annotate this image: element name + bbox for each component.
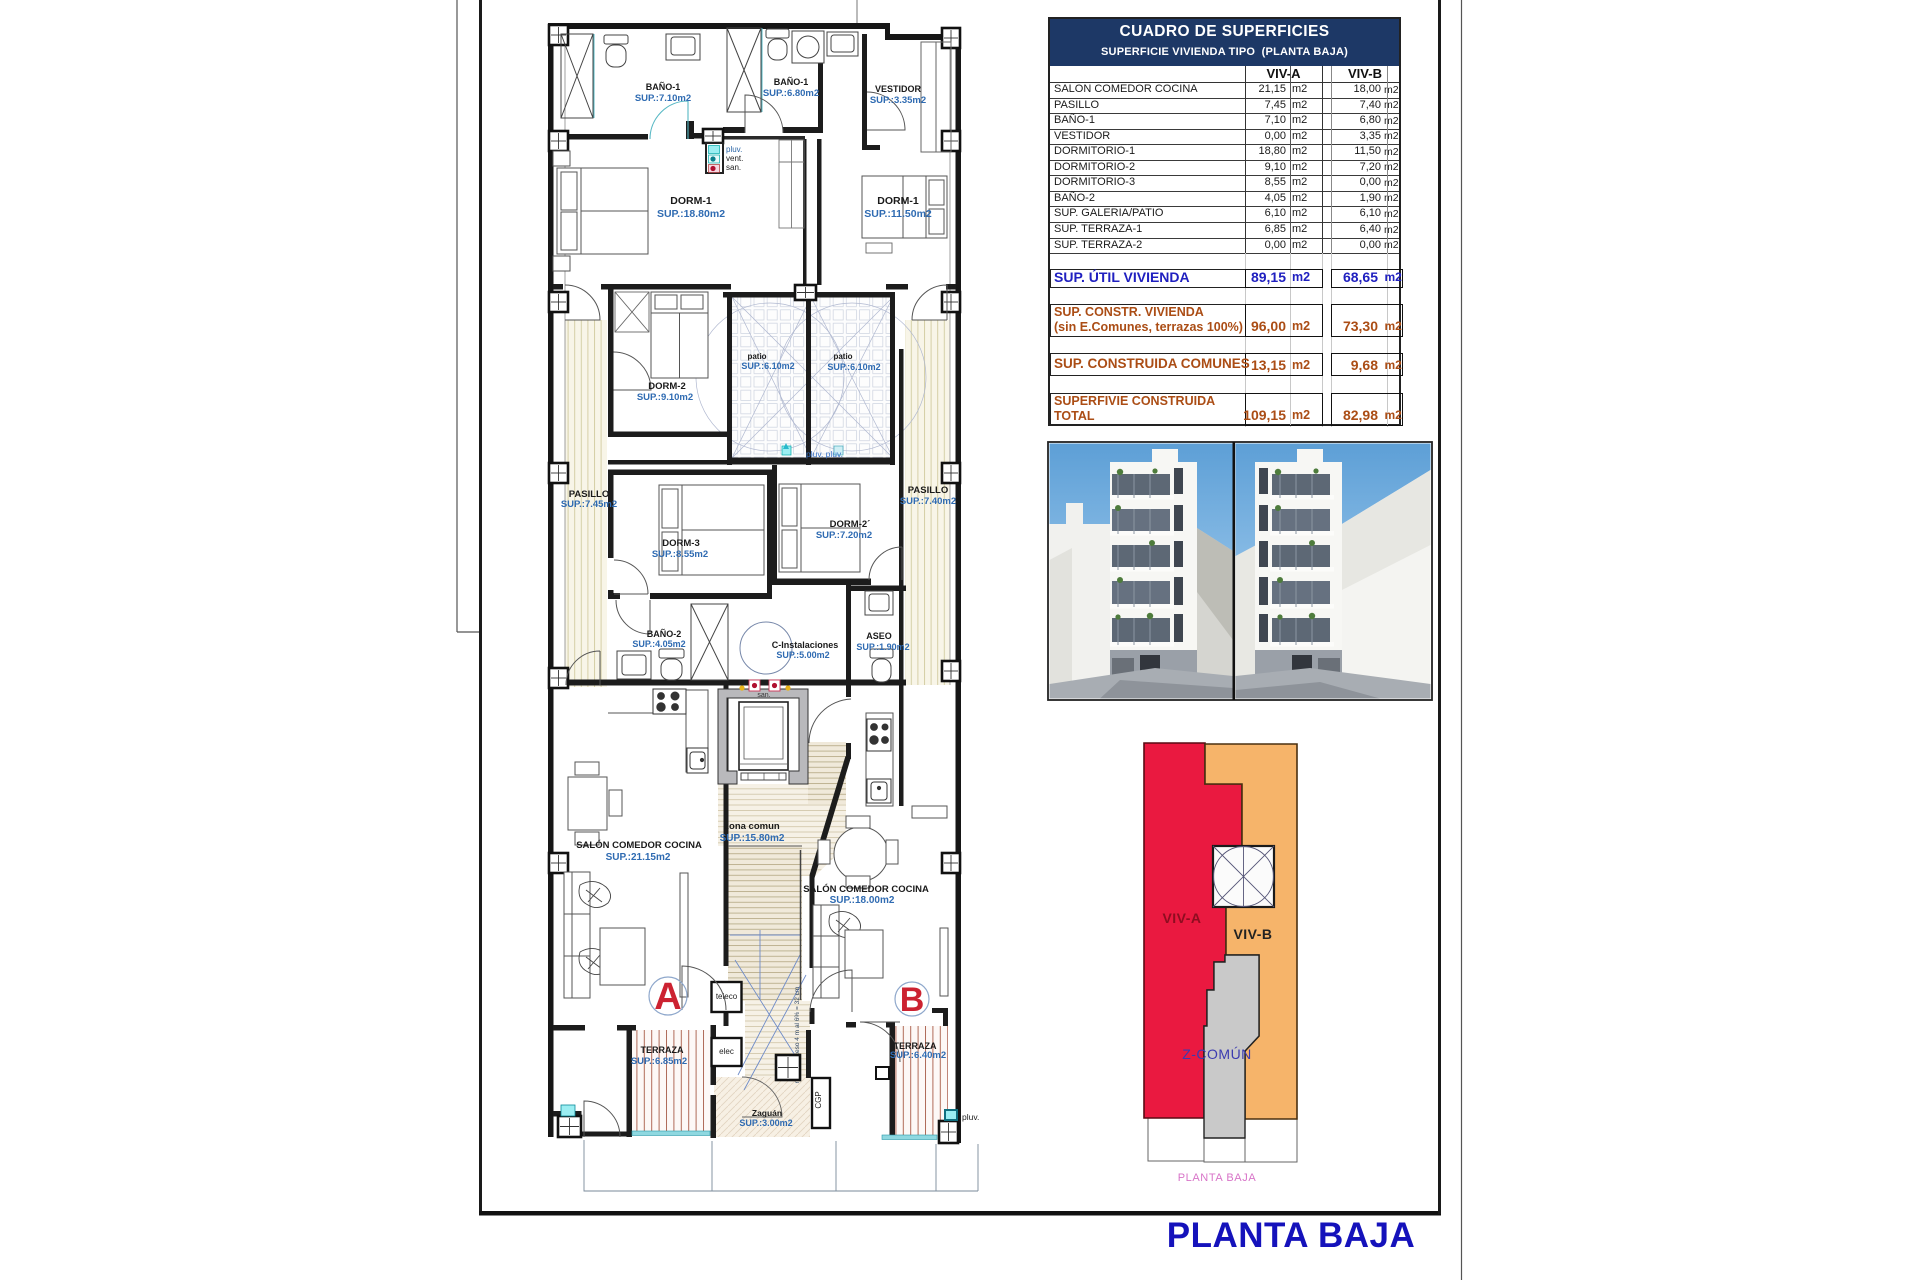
svg-text:SALÓN COMEDOR COCINA: SALÓN COMEDOR COCINA [576, 839, 702, 851]
svg-text:TERRAZA: TERRAZA [641, 1045, 684, 1055]
svg-text:SUP.:11.50m2: SUP.:11.50m2 [864, 208, 932, 220]
svg-text:SUP.:9.10m2: SUP.:9.10m2 [637, 392, 693, 403]
svg-text:DORM-1: DORM-1 [670, 195, 712, 207]
svg-text:VIV-B: VIV-B [1233, 926, 1272, 942]
svg-text:SUP.:7.40m2: SUP.:7.40m2 [900, 496, 956, 507]
svg-text:PLANTA BAJA: PLANTA BAJA [1178, 1172, 1257, 1184]
svg-text:SUP.:1.90m2: SUP.:1.90m2 [856, 642, 909, 652]
svg-text:SUP.:18.80m2: SUP.:18.80m2 [657, 208, 725, 220]
svg-text:SUP.:7.10m2: SUP.:7.10m2 [635, 93, 691, 104]
svg-text:SUP.:7.45m2: SUP.:7.45m2 [561, 499, 617, 510]
svg-text:C-Instalaciones: C-Instalaciones [772, 640, 839, 650]
svg-text:PASILLO: PASILLO [908, 485, 948, 496]
svg-text:BAÑO-1: BAÑO-1 [646, 82, 681, 92]
svg-text:SUP.:15.80m2: SUP.:15.80m2 [720, 833, 785, 844]
svg-text:SUP.:6.85m2: SUP.:6.85m2 [631, 1056, 687, 1067]
svg-text:teleco: teleco [716, 992, 738, 1001]
svg-text:BAÑO-2: BAÑO-2 [647, 629, 682, 639]
svg-text:SUP.:6.10m2: SUP.:6.10m2 [741, 361, 794, 371]
svg-text:DORM-3: DORM-3 [662, 538, 699, 549]
svg-text:SUP.:7.20m2: SUP.:7.20m2 [816, 530, 872, 541]
svg-text:VESTIDOR: VESTIDOR [875, 84, 922, 94]
svg-text:VIV-A: VIV-A [1162, 910, 1201, 926]
svg-text:B: B [900, 981, 925, 1019]
svg-text:SUP.:18.00m2: SUP.:18.00m2 [830, 895, 895, 906]
svg-text:Z-COMÚN: Z-COMÚN [1182, 1046, 1252, 1062]
svg-text:ASEO: ASEO [866, 631, 892, 641]
svg-text:SUP.:6.40m2: SUP.:6.40m2 [890, 1050, 946, 1061]
svg-text:SUP.:21.15m2: SUP.:21.15m2 [606, 852, 671, 863]
svg-text:DORM-2´: DORM-2´ [830, 519, 871, 530]
svg-text:SUP.:6.10m2: SUP.:6.10m2 [827, 362, 880, 372]
svg-text:A: A [654, 976, 681, 1018]
svg-text:DORM-1: DORM-1 [877, 195, 919, 207]
svg-text:zona comun: zona comun [724, 821, 780, 832]
svg-text:DORM-2: DORM-2 [648, 381, 685, 392]
svg-text:SUP.:4.05m2: SUP.:4.05m2 [632, 639, 685, 649]
svg-text:BAÑO-1: BAÑO-1 [774, 77, 809, 87]
svg-text:SUP.:5.00m2: SUP.:5.00m2 [776, 650, 829, 660]
svg-text:san.: san. [757, 692, 770, 699]
svg-text:SUP.:3.35m2: SUP.:3.35m2 [870, 95, 926, 106]
svg-text:SUP.:6.80m2: SUP.:6.80m2 [763, 88, 819, 99]
svg-text:elec: elec [719, 1047, 734, 1056]
svg-text:vent.: vent. [726, 154, 743, 163]
svg-text:pluv.: pluv. [726, 145, 742, 154]
svg-text:patio: patio [833, 352, 852, 361]
svg-text:pluv.: pluv. [962, 1112, 979, 1122]
svg-text:patio: patio [747, 352, 766, 361]
svg-text:CGP: CGP [814, 1091, 823, 1108]
svg-text:san.: san. [726, 163, 741, 172]
svg-text:SALÓN COMEDOR COCINA: SALÓN COMEDOR COCINA [803, 883, 929, 895]
svg-text:SUP.:8.55m2: SUP.:8.55m2 [652, 549, 708, 560]
svg-text:pluv. pluv.: pluv. pluv. [806, 449, 843, 459]
svg-text:Zaguán: Zaguán [752, 1108, 782, 1118]
svg-text:PLANTA BAJA: PLANTA BAJA [1167, 1216, 1416, 1255]
svg-text:SUP.:3.00m2: SUP.:3.00m2 [739, 1118, 792, 1128]
